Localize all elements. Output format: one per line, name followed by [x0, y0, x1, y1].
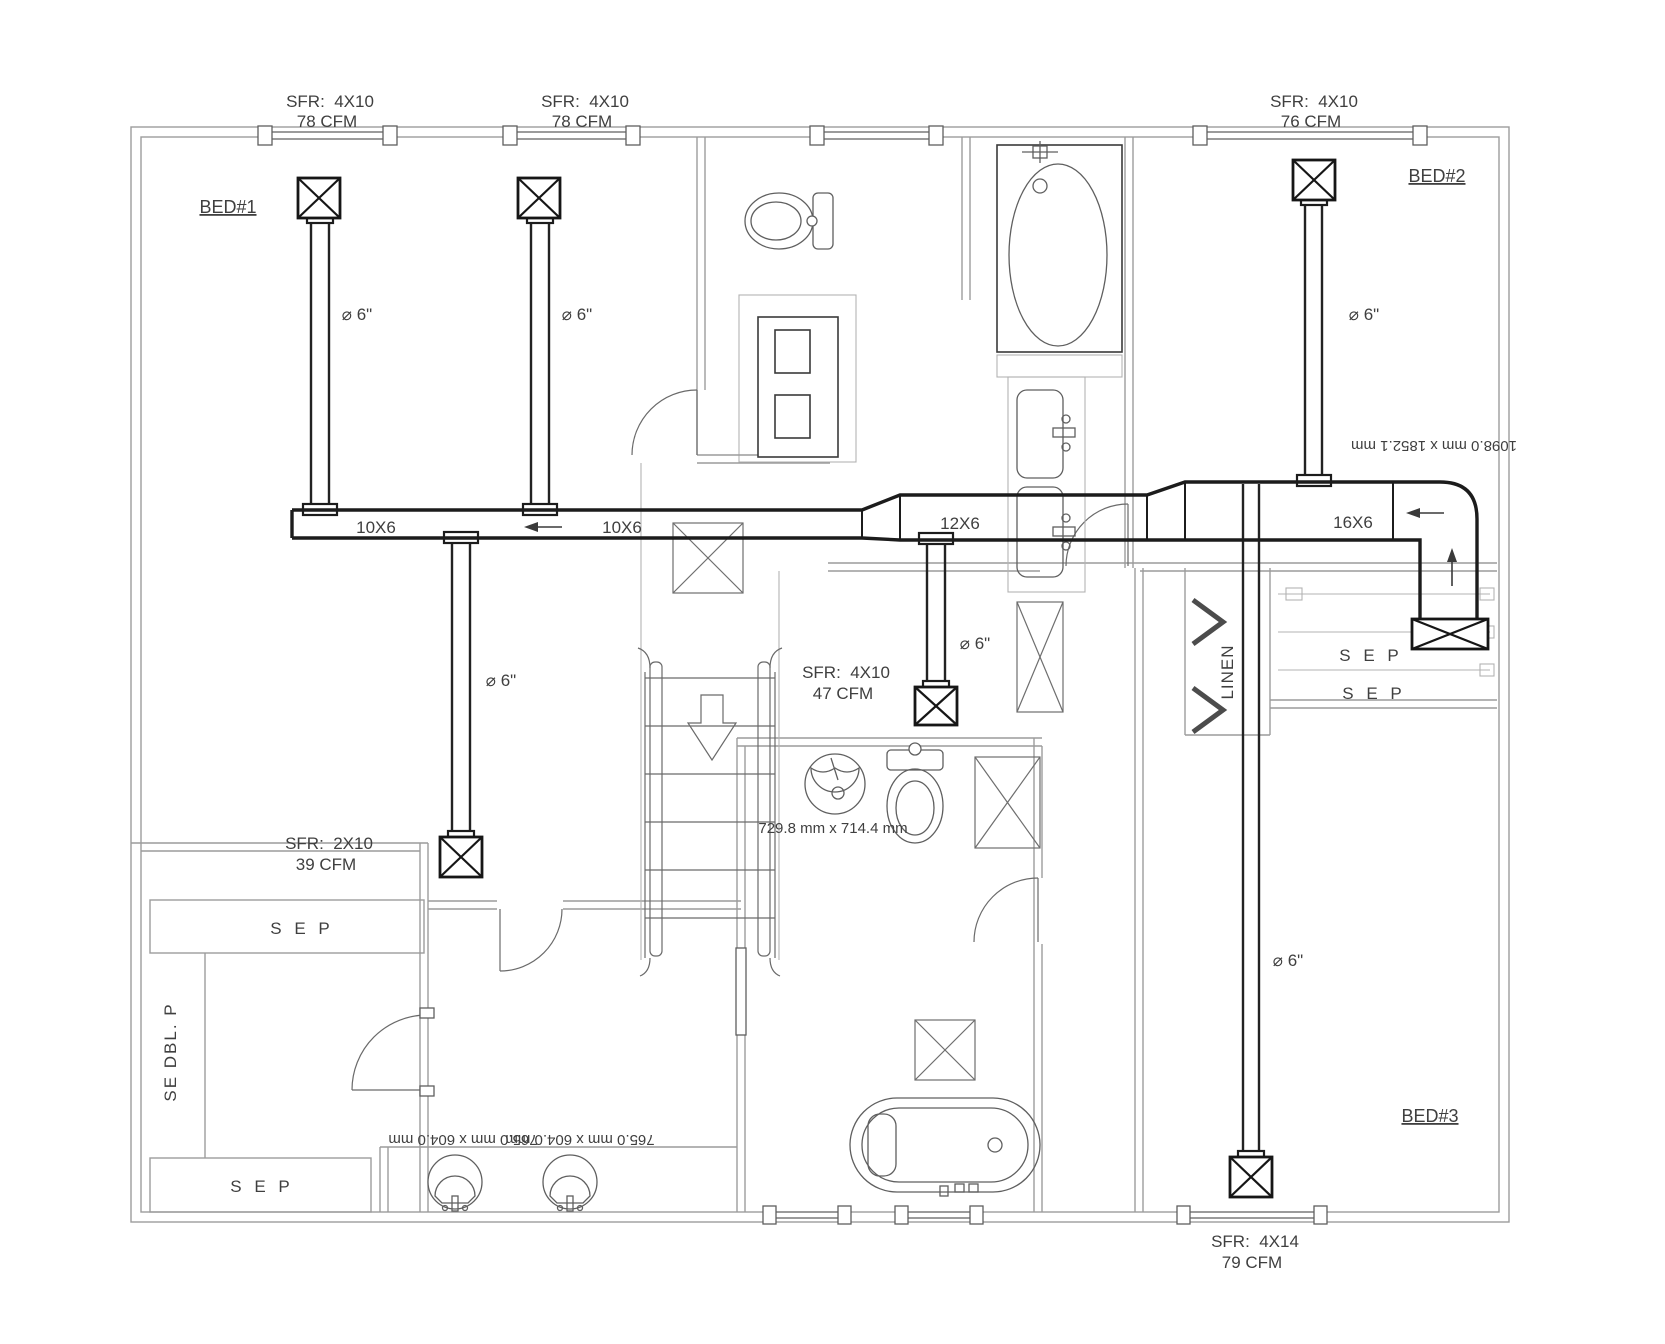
register-cfm-2: 78 CFM [552, 112, 612, 131]
shower-pan [975, 757, 1040, 848]
branch-duct-5 [1305, 200, 1322, 484]
door-bottom-bath [736, 948, 746, 1035]
register-size-1: SFR: 4X10 [286, 92, 374, 111]
floor-plan-page: SFR: 4X10 78 CFM SFR: 4X10 78 CFM SFR: 4… [0, 0, 1665, 1344]
register-cfm-1: 78 CFM [297, 112, 357, 131]
branch-dia-label-4: ⌀ 6" [960, 634, 990, 653]
bathtub-upper [997, 141, 1122, 377]
register-cfm-5: 39 CFM [296, 855, 356, 874]
linen-cabinet [758, 317, 838, 457]
branch-dia-label-2: ⌀ 6" [562, 305, 592, 324]
dim-label-master-tub: 1098.0 mm x 1852.1 mm [1351, 437, 1517, 454]
closet-label-sep-bottom: S E P [230, 1177, 293, 1196]
door-bath-top [632, 390, 697, 455]
supply-diffuser-3 [440, 831, 482, 877]
duct-size-label-2: 10X6 [602, 518, 642, 537]
bathtub-lower [850, 1098, 1040, 1196]
dim-label-sink-2: 765.0 mm x 604.0 mm [505, 1131, 654, 1148]
stairs-down-arrow-icon [688, 695, 736, 760]
ceiling-opening-3 [915, 1020, 975, 1080]
register-size-2: SFR: 4X10 [541, 92, 629, 111]
toilet-upper [745, 193, 833, 249]
room-label-bed3: BED#3 [1401, 1106, 1458, 1126]
vanity-upper [1008, 377, 1085, 592]
register-cfm-3: 76 CFM [1281, 112, 1341, 131]
register-size-6: SFR: 4X14 [1211, 1232, 1299, 1251]
branch-duct-2 [531, 218, 549, 512]
register-size-5: SFR: 2X10 [285, 834, 373, 853]
duct-size-label-4: 16X6 [1333, 513, 1373, 532]
supply-diffuser-6 [1230, 1151, 1272, 1197]
ceiling-opening-2 [1017, 602, 1063, 712]
closet-label-double-pole: SE DBL. P [161, 1002, 180, 1101]
dim-label-powder: 729.8 mm x 714.4 mm [758, 820, 907, 837]
door-powder [974, 878, 1038, 942]
airflow-arrow-1 [524, 522, 562, 532]
door-hall-lower [500, 909, 562, 971]
window-top-3 [810, 126, 943, 145]
supply-diffuser-2 [518, 178, 560, 223]
register-cfm-6: 79 CFM [1222, 1253, 1282, 1272]
closet-label-sep-hall-2: S E P [1342, 684, 1405, 703]
branch-duct-6 [1243, 484, 1259, 1159]
sink-powder [805, 754, 865, 814]
branch-dia-label-6: ⌀ 6" [1273, 951, 1303, 970]
duct-size-label-3: 12X6 [940, 514, 980, 533]
branch-dia-label-3: ⌀ 6" [486, 671, 516, 690]
ceiling-opening-1 [673, 523, 743, 593]
supply-diffuser-1 [298, 178, 340, 223]
supply-diffuser-5 [1293, 160, 1335, 205]
stairs [638, 648, 782, 976]
supply-diffuser-4 [915, 681, 957, 725]
closet-label-sep-hall-1: S E P [1339, 646, 1402, 665]
room-label-bed2: BED#2 [1408, 166, 1465, 186]
branch-duct-1 [311, 218, 329, 512]
vanity-sink-1 [428, 1155, 482, 1211]
register-size-3: SFR: 4X10 [1270, 92, 1358, 111]
airflow-arrow-2 [1406, 508, 1444, 518]
closet-label-linen: LINEN [1218, 644, 1237, 699]
branch-dia-label-5: ⌀ 6" [1349, 305, 1379, 324]
return-grille [1412, 619, 1488, 649]
floor-plan-canvas: SFR: 4X10 78 CFM SFR: 4X10 78 CFM SFR: 4… [0, 0, 1665, 1344]
register-size-4: SFR: 4X10 [802, 663, 890, 682]
closet-label-sep-top: S E P [270, 919, 333, 938]
branch-duct-3 [452, 536, 470, 839]
door-closet [352, 1008, 434, 1096]
room-label-bed1: BED#1 [199, 197, 256, 217]
register-cfm-4: 47 CFM [813, 684, 873, 703]
branch-dia-label-1: ⌀ 6" [342, 305, 372, 324]
duct-size-label-1: 10X6 [356, 518, 396, 537]
vanity-sink-2 [543, 1155, 597, 1211]
airflow-arrow-3 [1447, 548, 1457, 586]
